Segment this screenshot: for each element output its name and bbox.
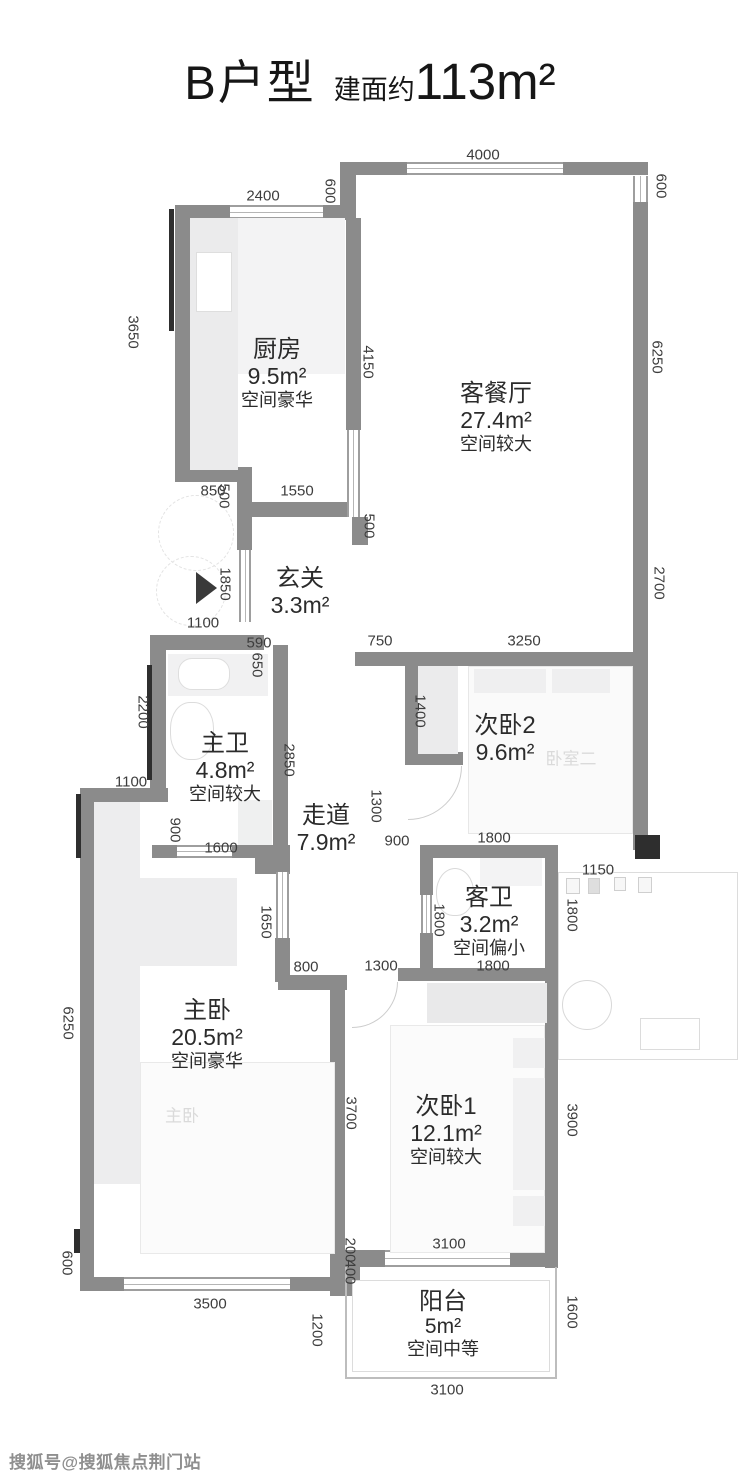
room-label-guest-bath: 客卫 3.2m² 空间偏小 bbox=[453, 884, 525, 959]
room-name: 阳台 bbox=[407, 1288, 479, 1315]
wall bbox=[633, 202, 648, 658]
dimension-label: 1850 bbox=[217, 567, 234, 600]
balcony-wall bbox=[345, 1377, 557, 1379]
room-label-kitchen: 厨房 9.5m² 空间豪华 bbox=[241, 336, 313, 411]
dimension-label: 2200 bbox=[135, 695, 152, 728]
room-label-master-bath: 主卫 4.8m² 空间较大 bbox=[189, 730, 261, 805]
dimension-label: 3500 bbox=[193, 1296, 226, 1313]
room-name: 厨房 bbox=[241, 336, 313, 363]
watermark: 搜狐号@搜狐焦点荆门站 bbox=[9, 1448, 201, 1473]
equipment-platform-box bbox=[640, 1018, 700, 1050]
room-label-bedroom-2: 次卧2 9.6m² bbox=[474, 712, 535, 765]
ghost-label: 卧室二 bbox=[546, 745, 597, 770]
pillow bbox=[513, 1078, 545, 1190]
room-area: 12.1m² bbox=[410, 1120, 482, 1146]
dimension-label: 2700 bbox=[651, 566, 668, 599]
wall bbox=[408, 652, 648, 666]
wall bbox=[563, 162, 648, 175]
dimension-label: 900 bbox=[384, 833, 409, 850]
room-note: 空间较大 bbox=[189, 783, 261, 805]
dimension-label: 650 bbox=[249, 652, 266, 677]
dimension-label: 1550 bbox=[280, 483, 313, 500]
dimension-label: 1200 bbox=[309, 1313, 326, 1346]
laundry-icon bbox=[588, 878, 600, 894]
wall bbox=[633, 658, 648, 850]
structural-column bbox=[635, 835, 660, 859]
window bbox=[124, 1277, 290, 1291]
room-area: 9.5m² bbox=[241, 363, 313, 389]
dimension-label: 900 bbox=[167, 817, 184, 842]
dimension-label: 6250 bbox=[649, 340, 666, 373]
wall bbox=[175, 218, 190, 472]
room-label-foyer: 玄关 3.3m² bbox=[271, 565, 330, 618]
room-label-bedroom-1: 次卧1 12.1m² 空间较大 bbox=[410, 1093, 482, 1168]
room-note: 空间偏小 bbox=[453, 937, 525, 959]
room-name: 次卧1 bbox=[410, 1093, 482, 1120]
pillow bbox=[474, 669, 546, 693]
bathroom-counter bbox=[480, 858, 542, 886]
room-note: 空间豪华 bbox=[171, 1050, 243, 1072]
room-area: 9.6m² bbox=[474, 739, 535, 765]
laundry-icon bbox=[614, 877, 626, 891]
laundry-icon bbox=[566, 878, 580, 894]
door-swing-arc bbox=[352, 982, 398, 1028]
room-note: 空间较大 bbox=[460, 433, 532, 455]
room-name: 主卫 bbox=[189, 730, 261, 757]
bay-window-strip bbox=[74, 1229, 80, 1253]
bathroom-sink bbox=[238, 800, 272, 845]
page-title: B户型 建面约 113m² bbox=[0, 44, 740, 113]
entry-door-opening bbox=[239, 550, 251, 622]
room-label-corridor: 走道 7.9m² bbox=[297, 802, 356, 855]
wardrobe bbox=[140, 878, 237, 966]
dimension-label: 590 bbox=[246, 635, 271, 652]
dimension-label: 1800 bbox=[476, 958, 509, 975]
dimension-label: 500 bbox=[216, 483, 233, 508]
room-label-balcony: 阳台 5m² 空间中等 bbox=[407, 1288, 479, 1360]
wall bbox=[355, 652, 408, 666]
pillow bbox=[552, 669, 610, 693]
dimension-label: 1400 bbox=[412, 694, 429, 727]
dimension-label: 3250 bbox=[507, 633, 540, 650]
area-prefix-label: 建面约 bbox=[334, 68, 415, 107]
dimension-label: 1150 bbox=[582, 862, 614, 879]
wall bbox=[250, 502, 360, 517]
dimension-label: 600 bbox=[322, 178, 339, 203]
dimension-label: 1800 bbox=[477, 830, 510, 847]
room-name: 客餐厅 bbox=[460, 380, 532, 407]
sliding-door bbox=[347, 430, 360, 517]
room-area: 3.2m² bbox=[453, 911, 525, 937]
balcony-wall bbox=[555, 1267, 557, 1379]
nightstand bbox=[513, 1196, 545, 1226]
wall bbox=[150, 650, 166, 793]
room-area: 20.5m² bbox=[171, 1024, 243, 1050]
room-area: 3.3m² bbox=[271, 592, 330, 618]
wall bbox=[346, 218, 361, 430]
dimension-label: 3100 bbox=[430, 1382, 463, 1399]
dimension-label: 2850 bbox=[281, 743, 298, 776]
wall bbox=[545, 858, 558, 1268]
dimension-label: 3100 bbox=[432, 1236, 465, 1253]
wall bbox=[80, 802, 94, 1277]
door-opening bbox=[276, 872, 289, 938]
wall bbox=[420, 845, 558, 858]
wall bbox=[398, 968, 545, 981]
window bbox=[407, 162, 563, 175]
dimension-label: 3900 bbox=[564, 1103, 581, 1136]
bay-window-strip bbox=[169, 209, 174, 331]
dimension-label: 750 bbox=[367, 633, 392, 650]
dimension-label: 1600 bbox=[564, 1295, 581, 1328]
room-name: 玄关 bbox=[271, 565, 330, 592]
room-name: 主卧 bbox=[171, 997, 243, 1024]
dimension-label: 6250 bbox=[60, 1006, 77, 1039]
wall bbox=[350, 162, 407, 175]
room-note: 空间较大 bbox=[410, 1146, 482, 1168]
dimension-label: 600 bbox=[653, 173, 670, 198]
dimension-label: 1800 bbox=[564, 898, 581, 931]
dimension-label: 800 bbox=[293, 959, 318, 976]
dimension-label: 500 bbox=[361, 513, 378, 538]
room-name: 次卧2 bbox=[474, 712, 535, 739]
room-name: 走道 bbox=[297, 802, 356, 829]
wardrobe bbox=[427, 983, 547, 1023]
room-label-master-bedroom: 主卧 20.5m² 空间豪华 bbox=[171, 997, 243, 1072]
bathtub bbox=[178, 658, 230, 690]
window bbox=[230, 205, 323, 219]
floor-plan: B户型 建面约 113m² bbox=[0, 0, 740, 1478]
area-value-label: 113m² bbox=[415, 52, 556, 111]
wall bbox=[80, 1277, 124, 1291]
ghost-label: 主卧 bbox=[165, 1102, 199, 1127]
dimension-label: 3650 bbox=[125, 315, 142, 348]
dimension-label: 4000 bbox=[466, 147, 499, 164]
dimension-label: 2400 bbox=[246, 188, 279, 205]
dimension-label: 1650 bbox=[258, 905, 275, 938]
dimension-label: 1600 bbox=[204, 840, 237, 857]
unit-type-label: B户型 bbox=[184, 44, 315, 113]
dimension-label: 4150 bbox=[360, 345, 377, 378]
laundry-icon bbox=[638, 877, 652, 893]
wardrobe bbox=[94, 802, 140, 1184]
dimension-label: 1300 bbox=[364, 958, 397, 975]
equipment-platform-circle bbox=[562, 980, 612, 1030]
room-area: 27.4m² bbox=[460, 407, 532, 433]
room-name: 客卫 bbox=[453, 884, 525, 911]
dimension-label: 600 bbox=[59, 1250, 76, 1275]
wall bbox=[420, 858, 433, 895]
dimension-label: 1800 bbox=[431, 903, 448, 936]
nightstand bbox=[513, 1038, 545, 1068]
window bbox=[633, 176, 648, 202]
room-note: 空间豪华 bbox=[241, 389, 313, 411]
dimension-label: 1100 bbox=[115, 774, 147, 791]
dimension-label: 3700 bbox=[343, 1096, 360, 1129]
dimension-label: 1100 bbox=[187, 615, 219, 632]
wall bbox=[232, 845, 290, 858]
room-area: 7.9m² bbox=[297, 829, 356, 855]
room-area: 5m² bbox=[407, 1315, 479, 1338]
room-label-living-dining: 客餐厅 27.4m² 空间较大 bbox=[460, 380, 532, 455]
wall bbox=[175, 205, 230, 219]
room-area: 4.8m² bbox=[189, 757, 261, 783]
dimension-label: 1300 bbox=[368, 789, 385, 822]
dimension-label: 400 bbox=[342, 1259, 359, 1284]
bed bbox=[140, 1062, 335, 1254]
bay-window-strip bbox=[76, 794, 81, 858]
kitchen-sink bbox=[196, 252, 232, 312]
wall bbox=[152, 845, 177, 858]
room-note: 空间中等 bbox=[407, 1338, 479, 1360]
door-swing-arc bbox=[408, 766, 462, 820]
